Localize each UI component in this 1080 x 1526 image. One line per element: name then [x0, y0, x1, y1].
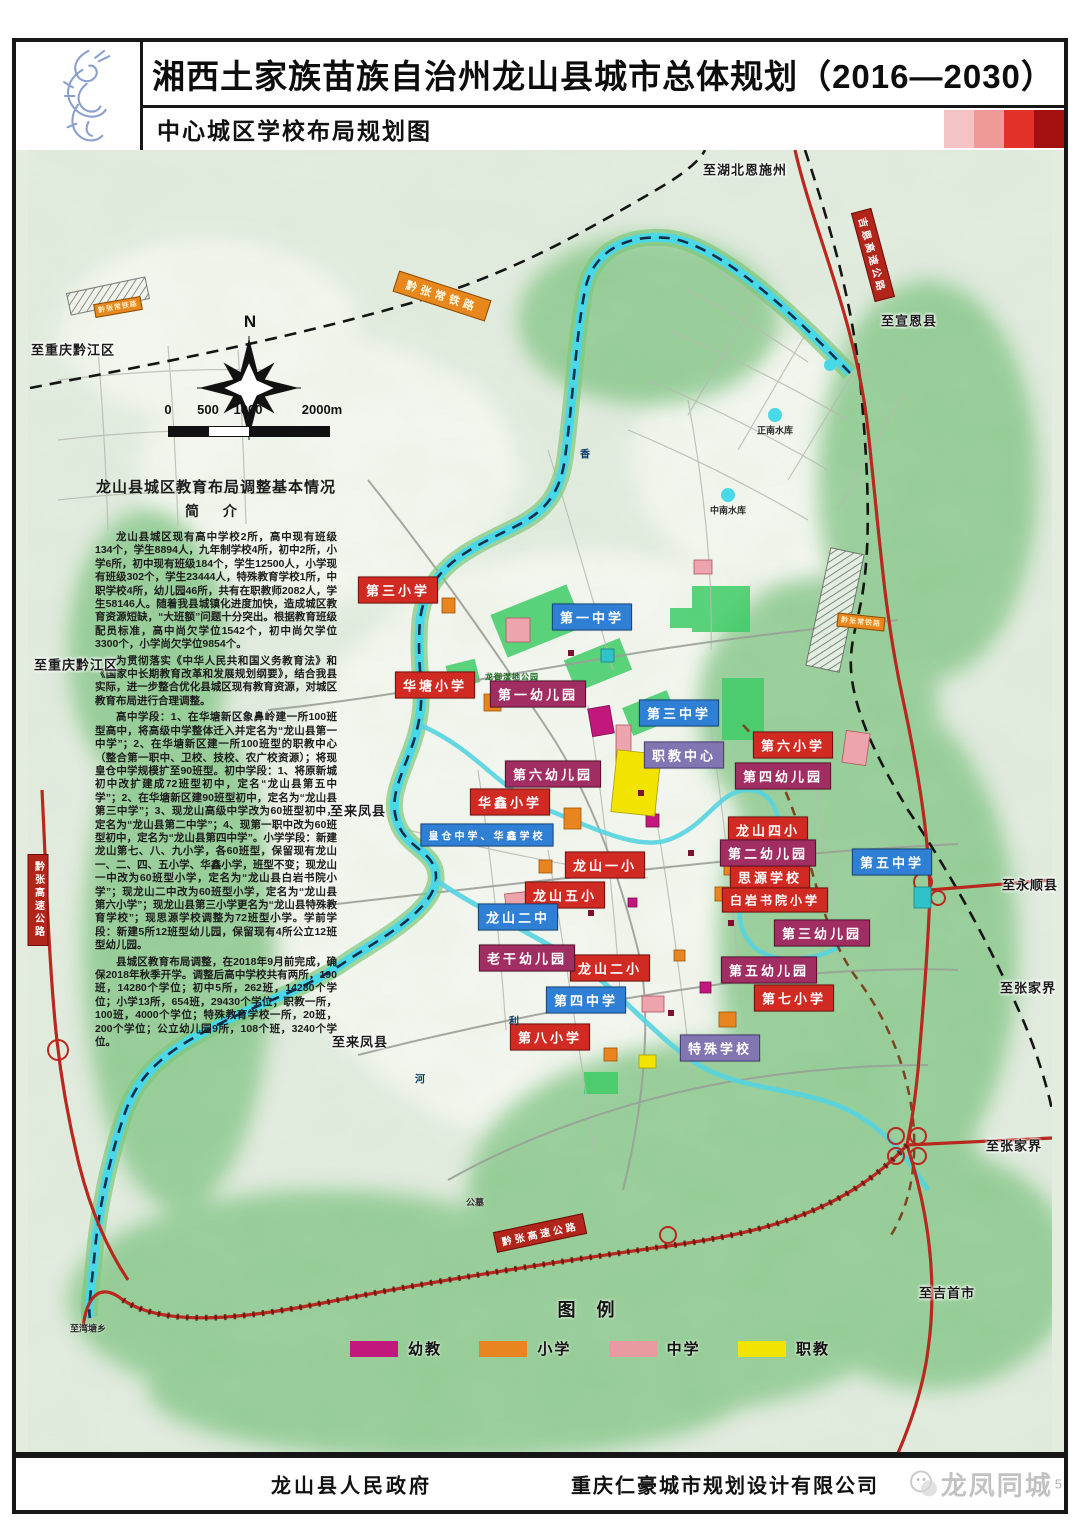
kindergarten-label: 第六幼儿园: [505, 761, 601, 788]
primary-school-label: 第七小学: [754, 985, 834, 1012]
intro-text-block: 龙山县城区教育布局调整基本情况 简 介 龙山县城区现有高中学校2所，高中现有班级…: [95, 476, 337, 1052]
primary-school-label: 华塘小学: [395, 672, 475, 699]
legend-item: 幼教: [350, 1338, 442, 1359]
middle-school-label: 龙山二中: [478, 904, 558, 931]
river-char: 香: [580, 446, 590, 461]
direction-label: 至重庆黔江区: [31, 340, 115, 359]
map-annotation: 至湾塘乡: [70, 1322, 106, 1335]
legend-label: 职教: [796, 1338, 830, 1359]
intro-heading: 龙山县城区教育布局调整基本情况: [95, 476, 337, 497]
middle-school-label: 第三中学: [639, 700, 719, 727]
subtitle-bar: 中心城区学校布局规划图: [143, 108, 1064, 150]
direction-label: 至张家界: [986, 1136, 1042, 1155]
gradient-swatch: [1004, 110, 1034, 148]
legend-items: 幼教小学中学职教: [350, 1338, 830, 1359]
legend-label: 小学: [537, 1338, 571, 1359]
river-char: 河: [415, 1071, 425, 1086]
dragon-logo-art: [23, 44, 133, 148]
kindergarten-label: 第五幼儿园: [721, 957, 817, 984]
direction-label: 至来凤县: [330, 801, 386, 820]
page-title: 湘西土家族苗族自治州龙山县城市总体规划（2016—2030）: [152, 50, 1055, 98]
legend-label: 中学: [667, 1338, 701, 1359]
vocational-school-label: 职教中心: [644, 742, 724, 769]
scale-bar: 050010002000m: [160, 402, 340, 442]
legend-swatch: [350, 1341, 398, 1357]
legend-item: 中学: [609, 1338, 701, 1359]
intro-paragraph: 为贯彻落实《中华人民共和国义务教育法》和《国家中长期教育改革和发展规划纲要》，结…: [95, 655, 337, 709]
primary-school-label: 华鑫小学: [470, 789, 550, 816]
scale-tick: 500: [197, 402, 219, 417]
kindergarten-label: 第三幼儿园: [774, 920, 870, 947]
gradient-swatch: [974, 110, 1004, 148]
direction-label: 至来凤县: [332, 1032, 388, 1051]
middle-school-label: 第一中学: [552, 604, 632, 631]
map-inner: N 050010002000m 龙山县城区教育布局调整基本情况 简 介 龙山县城…: [28, 150, 1052, 1453]
kindergarten-label: 老干幼儿园: [479, 945, 575, 972]
legend-item: 职教: [738, 1338, 830, 1359]
middle-school-label: 第四中学: [546, 987, 626, 1014]
scale-tick: 1000: [234, 402, 263, 417]
primary-school-label: 龙山一小: [565, 852, 645, 879]
title-bar: 湘西土家族苗族自治州龙山县城市总体规划（2016—2030）: [143, 42, 1064, 108]
gradient-swatch: [944, 110, 974, 148]
primary-school-label: 龙山二小: [570, 955, 650, 982]
park-label: 龙御湿地公园: [485, 672, 539, 683]
legend-swatch: [738, 1341, 786, 1357]
map-legend: 图 例 幼教小学中学职教: [350, 1296, 830, 1359]
direction-label: 至吉首市: [919, 1283, 975, 1302]
watermark-text: 龙凤同城: [941, 1466, 1053, 1503]
map-subtitle: 中心城区学校布局规划图: [157, 112, 432, 146]
page-number: 5: [1055, 1477, 1062, 1492]
kindergarten-label: 第四幼儿园: [735, 763, 831, 790]
scale-tick: 0: [164, 402, 171, 417]
legend-swatch: [609, 1341, 657, 1357]
legend-title: 图 例: [350, 1296, 830, 1322]
primary-school-label: 白岩书院小学: [722, 888, 828, 913]
intro-paragraph: 县城区教育布局调整，在2018年9月前完成，确保2018年秋季开学。调整后高中学…: [95, 956, 337, 1050]
intro-paragraph: 龙山县城区现有高中学校2所，高中现有班级134个，学生8894人，九年制学校4所…: [95, 531, 337, 652]
kindergarten-label: 第二幼儿园: [720, 840, 816, 867]
legend-item: 小学: [479, 1338, 571, 1359]
kindergarten-label: 第一幼儿园: [490, 681, 586, 708]
gradient-swatch: [1034, 110, 1064, 148]
map-annotation: 中南水库: [710, 504, 746, 517]
primary-school-label: 第八小学: [510, 1024, 590, 1051]
legend-swatch: [479, 1341, 527, 1357]
footer-government: 龙山县人民政府: [271, 1470, 432, 1499]
red-gradient-swatches: [944, 110, 1064, 148]
intro-subheading: 简 介: [95, 501, 337, 521]
middle-school-label: 第五中学: [852, 849, 932, 876]
direction-label: 至永顺县: [1002, 875, 1058, 894]
legend-label: 幼教: [408, 1338, 442, 1359]
intro-paragraphs: 龙山县城区现有高中学校2所，高中现有班级134个，学生8894人，九年制学校4所…: [95, 531, 337, 1049]
direction-label: 至张家界: [1000, 978, 1056, 997]
watermark: 龙凤同城 5: [907, 1466, 1062, 1503]
map-canvas: N 050010002000m 龙山县城区教育布局调整基本情况 简 介 龙山县城…: [16, 150, 1064, 1455]
planning-map-page: 湘西土家族苗族自治州龙山县城市总体规划（2016—2030） 中心城区学校布局规…: [0, 0, 1080, 1526]
scale-bar-segments: [168, 426, 330, 437]
middle-school-label: 皇仓中学、华鑫学校: [421, 824, 554, 847]
map-annotation: 正南水库: [757, 424, 793, 437]
wechat-icon: [907, 1467, 941, 1501]
dragon-logo: [16, 42, 143, 150]
highway-label: 黔张高速公路: [28, 854, 49, 946]
primary-school-label: 思源学校: [730, 864, 810, 891]
direction-label: 至重庆黔江区: [34, 655, 118, 674]
primary-school-label: 第三小学: [358, 577, 438, 604]
river-char: 利: [509, 1013, 519, 1028]
intro-paragraph: 高中学段：1、在华塘新区象鼻岭建一所100班型高中，将高级中学整体迁入并定名为“…: [95, 711, 337, 952]
footer-bar: 龙山县人民政府 重庆仁豪城市规划设计有限公司 龙凤同城 5: [16, 1455, 1064, 1510]
map-annotation: 公墓: [466, 1196, 484, 1209]
direction-label: 至湖北恩施州: [703, 160, 787, 179]
primary-school-label: 第六小学: [753, 732, 833, 759]
footer-design-firm: 重庆仁豪城市规划设计有限公司: [571, 1470, 879, 1499]
scale-tick: 2000m: [302, 402, 342, 417]
compass-north-label: N: [244, 312, 256, 332]
vocational-school-label: 特殊学校: [680, 1035, 760, 1062]
direction-label: 至宣恩县: [881, 311, 937, 330]
